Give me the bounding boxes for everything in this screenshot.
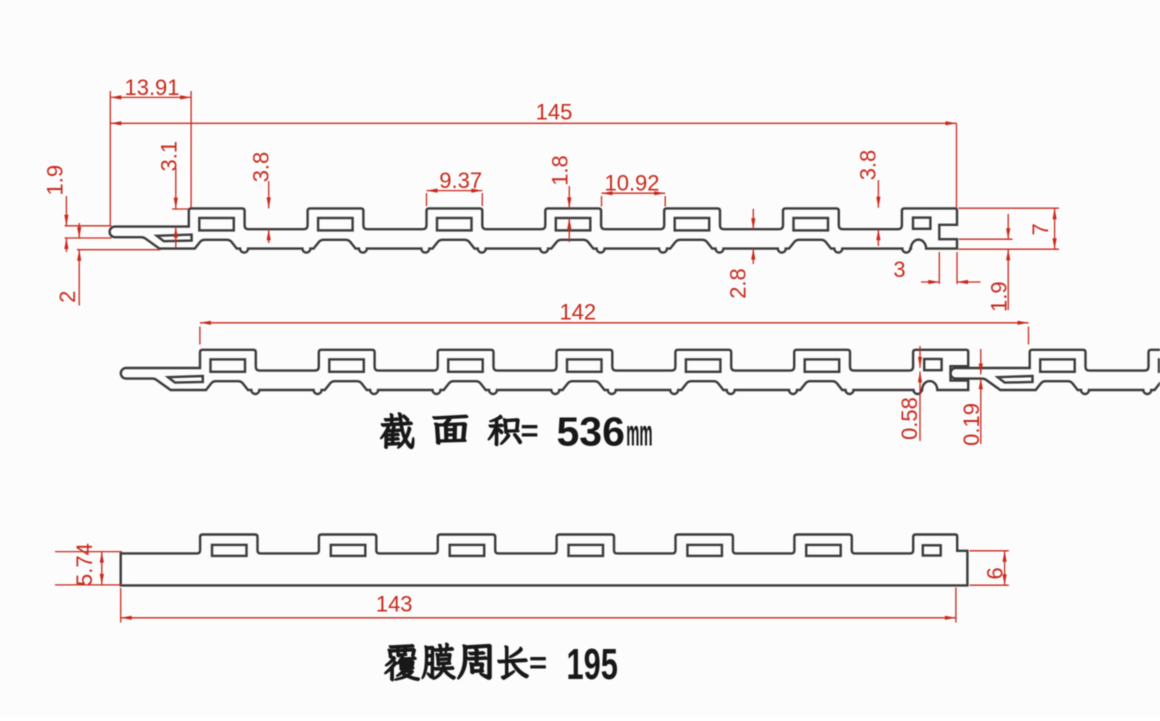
svg-text:536: 536 <box>557 408 625 454</box>
svg-text:3.8: 3.8 <box>249 152 274 183</box>
svg-text:7: 7 <box>1028 223 1053 235</box>
svg-text:10.92: 10.92 <box>604 171 659 196</box>
svg-text:0.19: 0.19 <box>959 403 984 446</box>
svg-text:6: 6 <box>982 567 1007 579</box>
svg-text:2: 2 <box>55 291 80 303</box>
svg-text:=: = <box>521 413 539 448</box>
svg-text:2.8: 2.8 <box>725 268 750 299</box>
svg-text:145: 145 <box>536 100 573 125</box>
svg-text:142: 142 <box>559 300 596 325</box>
svg-text:1.8: 1.8 <box>547 155 572 186</box>
svg-text:3: 3 <box>893 257 905 282</box>
svg-text:195: 195 <box>567 641 618 690</box>
svg-text:3.8: 3.8 <box>855 150 880 181</box>
svg-text:13.91: 13.91 <box>124 75 179 100</box>
svg-text:3.1: 3.1 <box>157 141 182 172</box>
svg-text:mm: mm <box>626 411 652 453</box>
svg-text:=: = <box>529 645 547 680</box>
svg-text:1.9: 1.9 <box>42 165 67 196</box>
svg-text:0.58: 0.58 <box>897 397 922 440</box>
svg-text:9.37: 9.37 <box>439 168 482 193</box>
svg-text:1.9: 1.9 <box>987 281 1012 312</box>
svg-text:5.74: 5.74 <box>72 543 97 586</box>
svg-text:143: 143 <box>376 592 413 617</box>
